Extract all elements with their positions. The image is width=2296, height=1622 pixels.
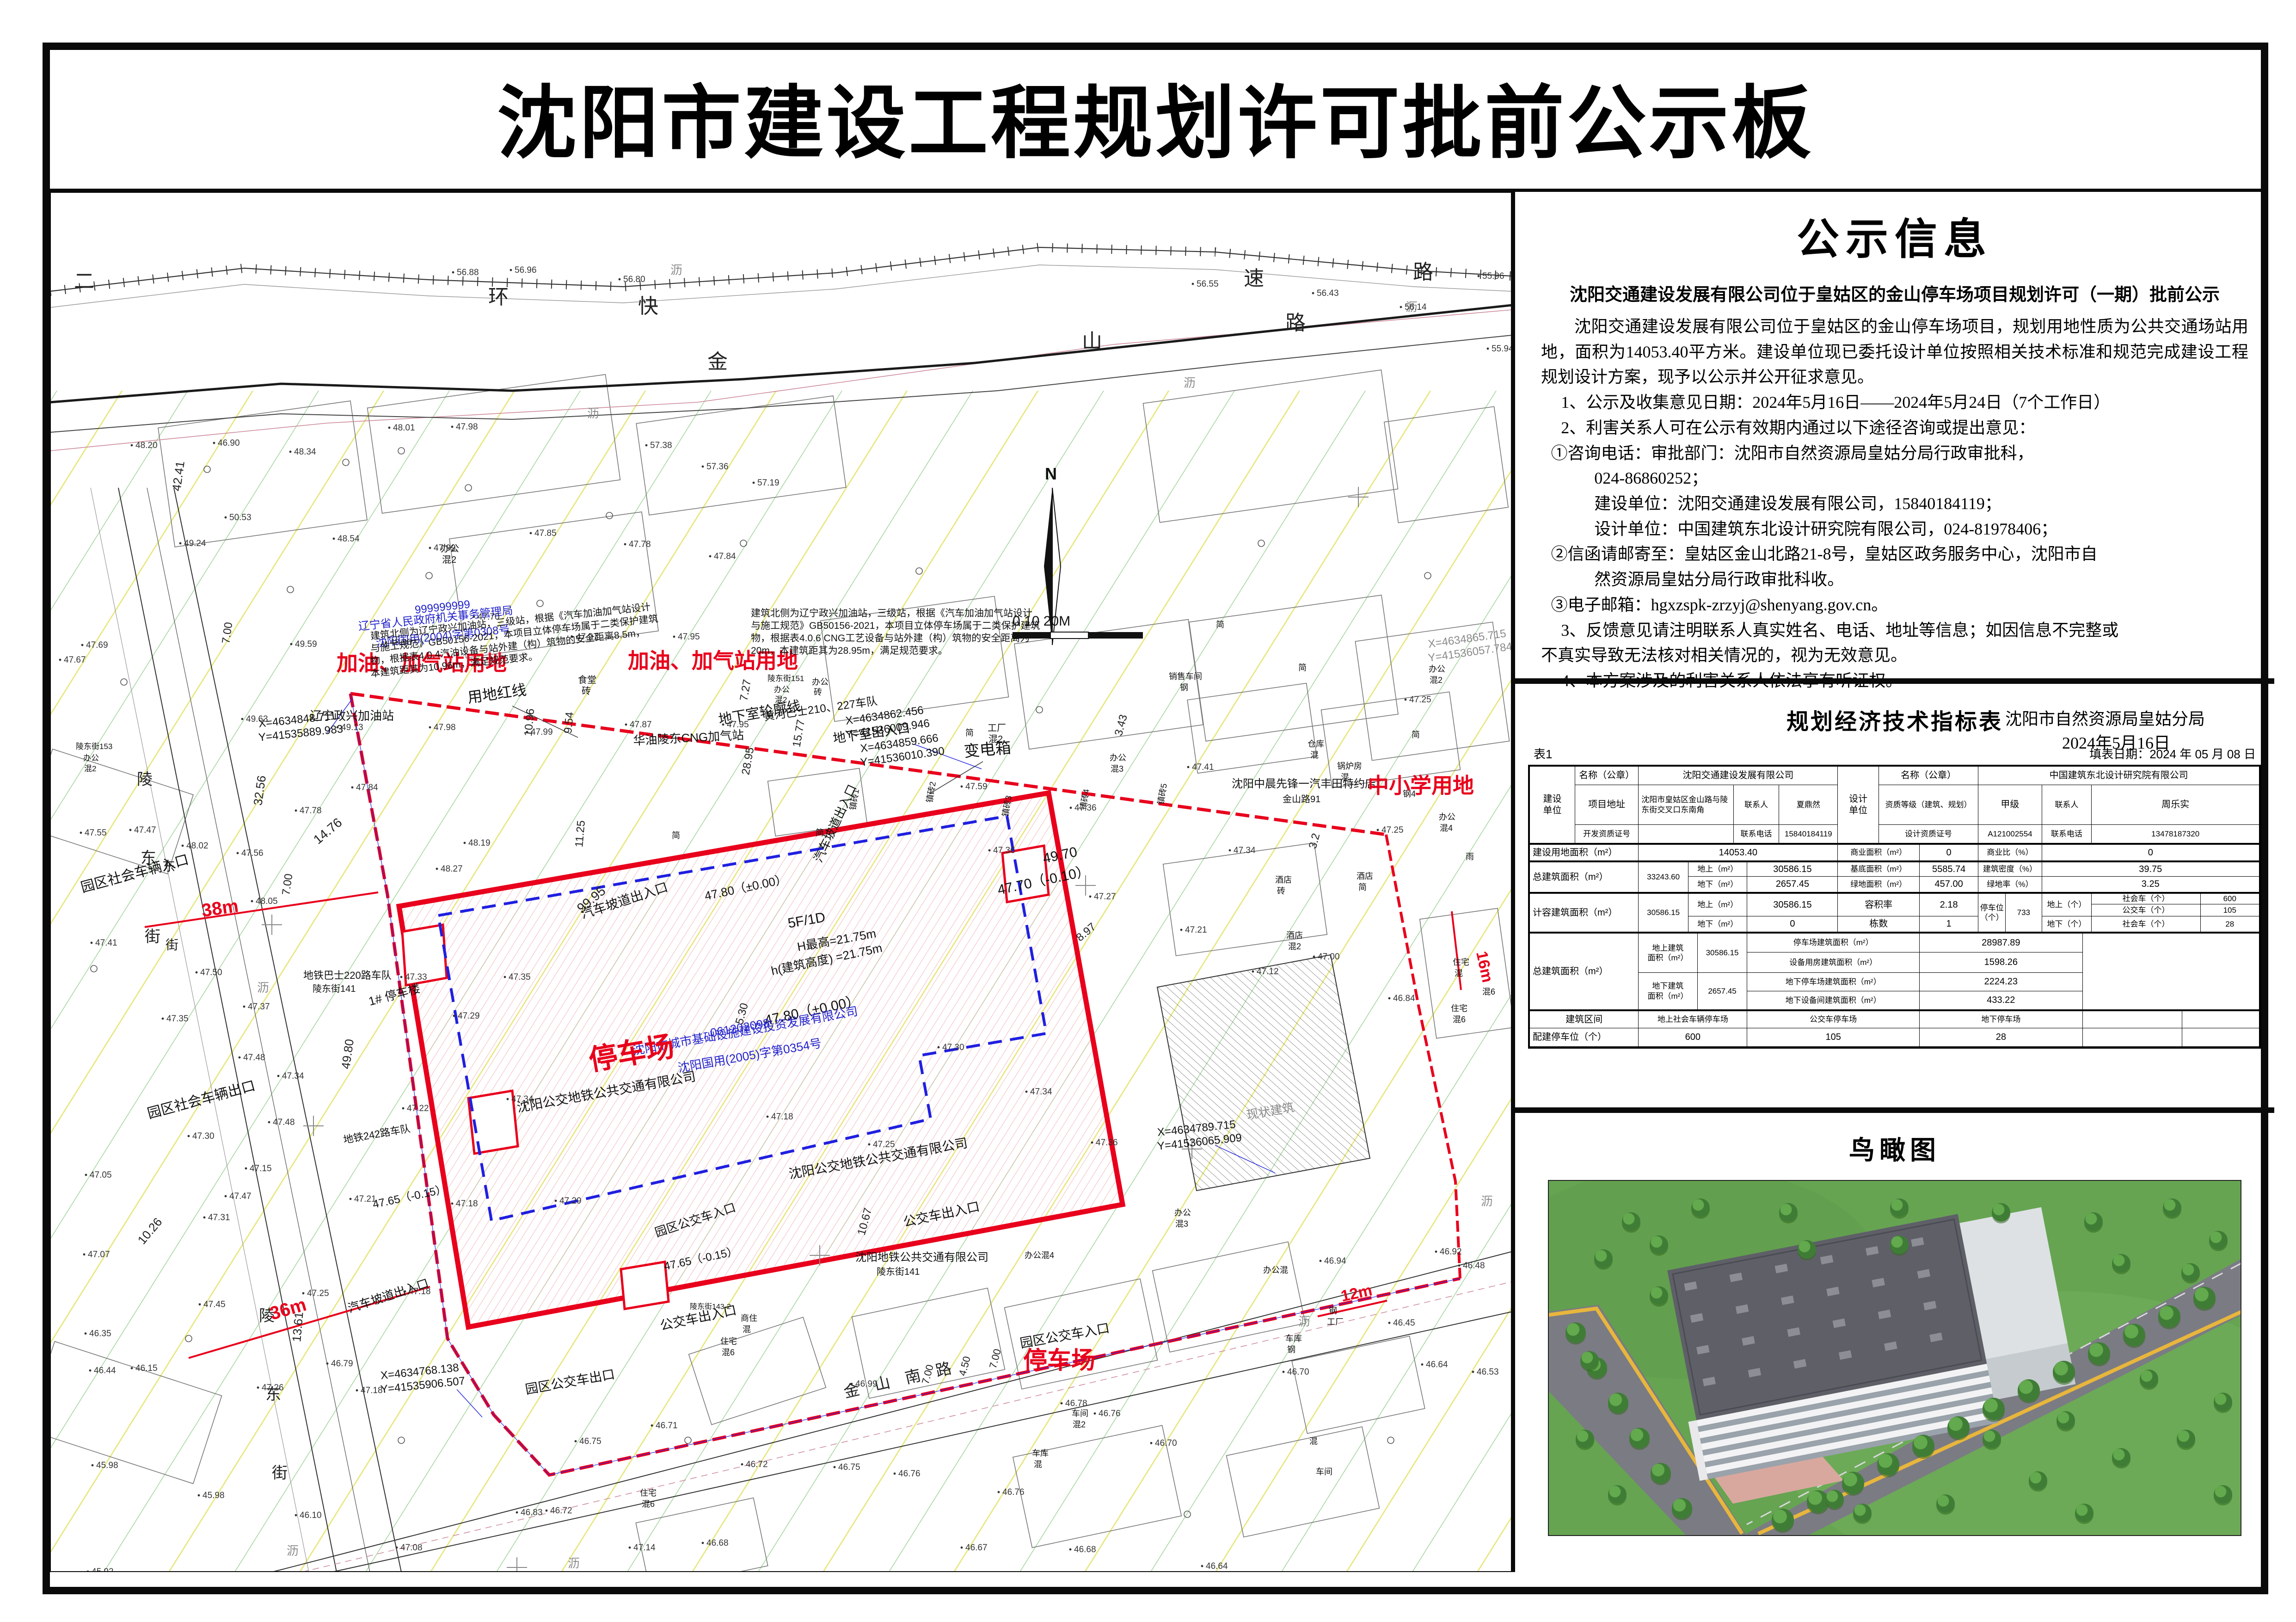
board-frame: 沈阳市建设工程规划许可批前公示板 二环快速路金山路陵东街东街陵东街金 山 南 路…	[43, 43, 2268, 1594]
table-cell: 联系电话	[2042, 825, 2092, 843]
map-label: 简	[672, 831, 680, 840]
elevation-dot	[302, 1292, 305, 1295]
map-label: 酒店	[1286, 931, 1303, 940]
map-label: 车间	[1072, 1409, 1088, 1418]
map-label: 混2	[84, 764, 96, 773]
table-cell: 设计 单位	[1838, 767, 1879, 843]
road-label: 路	[1285, 312, 1306, 334]
right-column: 公示信息 沈阳交通建设发展有限公司位于皇姑区的金山停车场项目规划许可（一期）批前…	[1512, 192, 2274, 1572]
table-cell: 2.18	[1920, 892, 1978, 916]
elevation-value: 47.18	[456, 1199, 478, 1209]
map-label: 混2	[775, 695, 787, 704]
elevation-value: 47.84	[714, 552, 736, 561]
note-text: 20m，本建筑距其为28.95m，满足规范要求。	[751, 645, 948, 656]
elevation-value: 46.68	[1074, 1545, 1096, 1554]
table-cell: 设计资质证号	[1879, 825, 1979, 843]
elevation-dot	[1061, 1402, 1063, 1405]
elevation-value: 48.34	[294, 447, 316, 457]
elevation-dot	[1252, 971, 1254, 973]
map-label: 陵东街151	[767, 674, 804, 683]
map-label: 混	[1309, 1437, 1318, 1446]
elevation-value: 48.19	[468, 838, 491, 848]
map-label: 车库	[1032, 1449, 1049, 1458]
table-cell: 0	[1747, 916, 1838, 932]
table-cell: 夏鼎然	[1779, 785, 1838, 825]
table-cell: 105	[1747, 1028, 1919, 1047]
tree-crown	[1808, 1491, 1822, 1505]
elevation-value: 47.56	[241, 848, 264, 858]
map-label: 混3	[1175, 1219, 1188, 1229]
elevation-dot	[188, 1135, 190, 1137]
elevation-value: 45.98	[96, 1461, 118, 1470]
elevation-value: 47.18	[409, 1287, 431, 1296]
elevation-value: 46.53	[1477, 1367, 1499, 1377]
elevation-dot	[1400, 306, 1402, 308]
elevation-dot	[89, 1370, 92, 1372]
map-label: 砖	[814, 688, 822, 697]
elevation-dot	[619, 278, 621, 281]
elevation-value: 47.50	[200, 968, 222, 977]
tree-crown	[1652, 1464, 1664, 1476]
elevation-value: 47.31	[208, 1213, 230, 1223]
elevation-dot	[453, 1015, 455, 1017]
site-notch	[621, 1262, 669, 1309]
table-cell: 总建筑面积（m²）	[1530, 932, 1639, 1010]
elevation-dot	[1377, 829, 1379, 831]
map-label: 仓库	[1308, 739, 1324, 749]
elevation-dot	[225, 516, 227, 519]
road-label: 街	[145, 928, 160, 946]
map-label: 简	[1216, 620, 1224, 629]
elevation-value: 47.33	[405, 972, 427, 982]
elevation-value: 46.64	[1426, 1360, 1448, 1370]
table-note-left: 表1	[1534, 745, 1552, 762]
table-cell: 2657.45	[1698, 973, 1748, 1010]
tree-crown	[1843, 1473, 1857, 1487]
elevation-value: 57.19	[757, 478, 780, 488]
map-label-faint: 沥	[1481, 1194, 1493, 1208]
elevation-value: 48.54	[338, 534, 360, 544]
elevation-value: 46.84	[1393, 994, 1415, 1003]
elevation-dot	[510, 269, 512, 271]
table-cell: 项目地址	[1575, 785, 1639, 825]
table-heading: 规划经济技术指标表	[1515, 684, 2274, 736]
tree-crown	[2030, 1472, 2042, 1484]
title-divider	[50, 189, 2261, 192]
table-cell: 105	[2201, 904, 2259, 916]
road-label: 山	[1082, 330, 1102, 353]
elevation-dot	[162, 1018, 164, 1020]
table-cell: 1598.26	[1920, 952, 2083, 973]
elevation-value: 46.68	[706, 1538, 729, 1548]
table-cell: 绿地率（%）	[1978, 877, 2042, 892]
elevation-value: 57.38	[650, 441, 672, 450]
table-cell: 30586.15	[1698, 932, 1748, 973]
elevation-dot	[464, 842, 466, 844]
elevation-value: 47.35	[166, 1014, 189, 1024]
elevation-value: 47.18	[771, 1112, 793, 1122]
elevation-dot	[1388, 997, 1391, 1000]
elevation-value: 47.78	[629, 540, 651, 549]
elevation-value: 46.35	[89, 1329, 111, 1339]
elevation-dot	[257, 1387, 259, 1389]
tree-crown	[2164, 1199, 2176, 1211]
tree-crown	[1651, 1236, 1663, 1248]
table-cell	[2182, 1028, 2259, 1047]
map-label: 混6	[1482, 987, 1495, 996]
elevation-dot	[722, 724, 724, 726]
map-label: 办公	[1429, 664, 1445, 674]
elevation-value: 46.67	[965, 1543, 988, 1553]
table-cell: 甲级	[1978, 785, 2042, 825]
tree-crown	[1693, 1199, 1704, 1211]
map-label: 锅炉房	[1337, 762, 1362, 771]
elevation-value: 47.30	[942, 1043, 964, 1052]
elevation-value: 46.76	[898, 1469, 921, 1479]
map-label: 混2	[1430, 676, 1443, 685]
elevation-dot	[1201, 1565, 1203, 1567]
tree-crown	[2113, 1255, 2125, 1266]
elevation-value: 47.87	[630, 720, 652, 730]
elevation-value: 47.47	[229, 1192, 252, 1201]
table-cell: 停车场建筑面积（m²）	[1747, 932, 1919, 952]
elevation-dot	[1150, 1442, 1153, 1444]
dimension-label: 9.54	[562, 712, 576, 734]
tree-crown	[1609, 1394, 1622, 1406]
elevation-value: 46.70	[1287, 1367, 1309, 1377]
elevation-value: 46.15	[135, 1364, 158, 1373]
road-label: 路	[1413, 261, 1433, 283]
map-label: 办公	[1174, 1208, 1191, 1217]
table-cell: 联系人	[2042, 785, 2092, 825]
tree-crown	[1651, 1287, 1663, 1299]
map-label: 钢	[1180, 683, 1188, 692]
notice-line: ③电子邮箱：hgxzspk-zrzyj@shenyang.gov.cn。	[1541, 592, 2248, 618]
map-label: 办公	[1439, 812, 1455, 822]
elevation-dot	[129, 829, 132, 831]
table-cell: 地下停车场	[1920, 1010, 2083, 1028]
elevation-value: 47.00	[1318, 952, 1340, 962]
elevation-value: 49.13	[341, 723, 363, 732]
table-cell: 绿地面积（m²）	[1838, 877, 1919, 892]
elevation-dot	[1069, 1548, 1072, 1551]
elevation-value: 47.45	[203, 1300, 226, 1309]
table-cell: 733	[2006, 892, 2042, 932]
elevation-dot	[624, 543, 626, 546]
elevation-dot	[530, 532, 532, 535]
tree-crown	[1673, 1499, 1686, 1511]
tree-crown	[2183, 1264, 2194, 1276]
elevation-dot	[356, 1389, 358, 1392]
elevation-dot	[239, 1057, 241, 1059]
table-cell: 中国建筑东北设计研究院有限公司	[1978, 767, 2259, 785]
elevation-dot	[1229, 849, 1231, 852]
elevation-value: 56.14	[1405, 302, 1427, 312]
elevation-dot	[575, 1440, 577, 1443]
elevation-value: 47.48	[243, 1053, 265, 1063]
elevation-value: 47.34	[1234, 846, 1256, 855]
tree-crown	[1623, 1213, 1635, 1225]
elevation-value: 47.48	[273, 1118, 295, 1127]
elevation-dot	[326, 1363, 329, 1365]
map-label: 沈阳中晨先锋一汽丰田特约店	[1232, 778, 1376, 790]
elevation-dot	[1312, 292, 1314, 295]
map-label: 住宅	[1453, 958, 1469, 967]
tree-crown	[1984, 1431, 1995, 1442]
table-cell: 沈阳市皇姑区金山路与陵东街交叉口东南角	[1639, 785, 1734, 825]
tree-crown	[1993, 1204, 2005, 1216]
road-label: 街	[272, 1464, 288, 1482]
map-label: 陵东街153	[76, 742, 112, 751]
elevation-value: 47.59	[965, 782, 988, 792]
map-label: 商住	[741, 1314, 757, 1323]
map-label: 车库	[1285, 1334, 1302, 1343]
map-label: 钢	[1329, 1306, 1337, 1315]
elevation-dot	[702, 1542, 704, 1544]
map-label: 沈阳地铁公共交通有限公司	[855, 1251, 988, 1264]
north-label: N	[1045, 464, 1057, 483]
table-cell: 600	[1639, 1028, 1747, 1047]
elevation-dot	[1313, 956, 1315, 958]
table-cell: 资质等级（建筑、规划）	[1879, 785, 1979, 825]
elevation-value: 46.99	[855, 1379, 878, 1389]
elevation-value: 45.98	[203, 1491, 225, 1500]
table-cell: 商业面积（m²）	[1838, 843, 1919, 861]
elevation-dot	[179, 542, 182, 545]
table-cell: 社会车（个）	[2092, 892, 2200, 904]
map-label: 简	[1358, 883, 1367, 892]
elevation-dot	[645, 444, 648, 447]
elevation-value: 47.18	[361, 1386, 383, 1395]
table-cell: 地下建筑 面积（m²）	[1639, 973, 1697, 1010]
elevation-value: 47.55	[85, 828, 107, 838]
table-cell	[1639, 825, 1734, 843]
table-cell: 基底面积（m²）	[1838, 861, 1919, 877]
tree-crown	[1827, 1491, 1838, 1502]
elevation-dot	[251, 900, 253, 903]
elevation-dot	[1025, 1091, 1028, 1093]
map-label-faint: 沥	[1184, 376, 1196, 390]
elevation-value: 56.80	[623, 275, 645, 284]
map-label: 酒店	[1275, 875, 1292, 885]
elevation-value: 47.21	[1185, 925, 1207, 935]
tree-crown	[2086, 1213, 2097, 1225]
elevation-dot	[245, 1167, 247, 1170]
note-text: 物，根据表4.0.6 CNG工艺设备与站外建（构）筑物的安全距离为	[751, 633, 1030, 644]
elevation-value: 46.76	[1002, 1487, 1025, 1497]
map-label-faint: 沥	[257, 981, 269, 995]
board-title: 沈阳市建设工程规划许可批前公示板	[50, 58, 2261, 174]
table-notes: 表1 填表日期：2024 年 05 月 08 日	[1515, 736, 2274, 765]
elevation-dot	[388, 427, 391, 429]
elevation-dot	[651, 1425, 653, 1427]
elevation-value: 57.36	[706, 462, 729, 472]
map-label: 混6	[722, 1348, 735, 1357]
notice-line: 2、利害关系人可在公示有效期内通过以下途径咨询或提出意见：	[1541, 415, 2248, 441]
elevation-dot	[83, 1253, 86, 1256]
elevation-dot	[1192, 283, 1194, 285]
dimension-label: 11.25	[573, 820, 588, 848]
elevation-value: 47.26	[262, 1383, 284, 1393]
elevation-value: 56.43	[1317, 289, 1339, 298]
elevation-dot	[429, 726, 431, 729]
elevation-value: 46.79	[331, 1359, 353, 1369]
map-label: 住宅	[720, 1337, 737, 1346]
elevation-dot	[851, 1383, 853, 1385]
tree-crown	[1799, 1241, 1811, 1253]
elevation-dot	[1070, 807, 1072, 809]
table-cell: 地上建筑 面积（m²）	[1639, 932, 1697, 973]
elevation-dot	[526, 731, 528, 733]
elevation-value: 46.45	[1393, 1318, 1415, 1328]
elevation-value: 50.53	[229, 513, 252, 522]
elevation-value: 47.41	[95, 938, 117, 948]
elevation-dot	[767, 1116, 769, 1118]
elevation-value: 47.22	[407, 1104, 429, 1113]
tree-crown	[1596, 1250, 1607, 1262]
elevation-dot	[404, 1290, 406, 1293]
elevation-dot	[507, 1098, 509, 1100]
elevation-dot	[237, 852, 239, 854]
table-cell: 地上（个）	[2042, 892, 2092, 916]
elevation-value: 47.95	[678, 632, 700, 642]
table-cell: 名称（公章）	[1575, 767, 1639, 785]
elevation-dot	[295, 1514, 297, 1517]
elevation-dot	[1091, 1142, 1093, 1144]
elevation-value: 48.20	[135, 441, 158, 450]
elevation-dot	[289, 451, 292, 453]
tree-crown	[2215, 1486, 2227, 1498]
elevation-dot	[1283, 1371, 1285, 1373]
map-label: 办公混4	[1025, 1251, 1054, 1260]
elevation-value: 47.07	[88, 1250, 110, 1260]
tree-crown	[1582, 1352, 1593, 1364]
table-cell: 14053.40	[1639, 843, 1838, 861]
elevation-dot	[709, 555, 712, 558]
scale-text: 0 10 20M	[1013, 614, 1070, 629]
notice-line: ②信函请邮寄至：皇姑区金山北路21-8号，皇姑区政务服务中心，沈阳市自	[1541, 541, 2248, 567]
site-notch	[468, 1091, 518, 1154]
elevation-value: 47.27	[1094, 892, 1116, 902]
map-label: 办公	[83, 754, 99, 762]
map-label: 办公	[1110, 753, 1126, 762]
table-cell: 周乐实	[2092, 785, 2259, 825]
map-label: 住宅	[1451, 1004, 1467, 1013]
map-label: 地铁巴士220路车队	[303, 970, 392, 981]
road-label: 陵	[137, 771, 153, 788]
notice-line: 024-86860252；	[1541, 466, 2248, 491]
table-cell: 457.00	[1920, 877, 1978, 892]
table-cell: 地下（个）	[2042, 916, 2092, 932]
elevation-dot	[350, 1198, 352, 1200]
elevation-value: 55.94	[1492, 344, 1512, 354]
elevation-dot	[504, 976, 506, 978]
elevation-value: 47.36	[1074, 803, 1097, 813]
elevation-dot	[546, 1510, 548, 1512]
elevation-value: 47.29	[559, 1196, 582, 1206]
elevation-value: 47.25	[1381, 825, 1404, 835]
table-cell: 建筑密度（%）	[1978, 861, 2042, 877]
elevation-value: 47.12	[1257, 967, 1279, 977]
elevation-value: 47.99	[434, 543, 456, 553]
table-cell: 30586.15	[1747, 892, 1838, 916]
elevation-dot	[894, 1473, 896, 1475]
elevation-dot	[131, 444, 133, 447]
table-cell: 2224.23	[1920, 973, 2083, 991]
table-cell: 栋数	[1838, 916, 1919, 932]
elevation-dot	[182, 845, 184, 847]
elevation-value: 46.90	[218, 438, 240, 448]
elevation-value: 47.34	[1030, 1087, 1052, 1097]
red-zone-label: 中小学用地	[1368, 774, 1474, 798]
map-label: 砖	[582, 686, 591, 696]
table-cell: 联系电话	[1734, 825, 1779, 843]
elevation-dot	[673, 636, 675, 638]
elevation-value: 46.71	[656, 1421, 678, 1431]
table-cell: 地下（m²）	[1688, 916, 1747, 932]
map-label-faint: 沥	[568, 1556, 580, 1570]
road-label: 环	[488, 286, 509, 308]
elevation-value: 56.96	[515, 265, 537, 275]
elevation-value: 49.63	[246, 714, 268, 724]
table-cell: 设备用房建筑面积（m²）	[1747, 952, 1919, 973]
elevation-value: 48.27	[441, 864, 463, 874]
elevation-dot	[85, 1333, 87, 1335]
elevation-dot	[92, 1464, 94, 1467]
notice-lines: 1、公示及收集意见日期：2024年5月16日——2024年5月24日（7个工作日…	[1541, 390, 2248, 694]
elevation-value: 46.48	[1463, 1261, 1485, 1271]
table-cell: 名称（公章）	[1879, 767, 1979, 785]
map-label: 陵东街143-2	[690, 1303, 731, 1311]
elevation-value: 56.55	[1197, 279, 1219, 289]
elevation-dot	[81, 644, 84, 646]
elevation-dot	[1180, 929, 1183, 931]
elevation-dot	[225, 1195, 227, 1198]
elevation-dot	[451, 1203, 454, 1205]
table-cell: 总建筑面积（m²）	[1530, 861, 1639, 892]
tree-crown	[2141, 1370, 2153, 1382]
elevation-dot	[1478, 275, 1480, 277]
table-cell: 0	[1920, 843, 1978, 861]
tree-crown	[2019, 1380, 2033, 1394]
table-cell: 15840184119	[1779, 825, 1838, 843]
notice-heading: 公示信息	[1515, 192, 2274, 266]
elevation-value: 47.98	[456, 422, 478, 432]
elevation-dot	[429, 547, 431, 549]
table-cell: 社会车（个）	[2092, 916, 2200, 932]
tree-crown	[2058, 1412, 2069, 1424]
elevation-dot	[268, 1121, 270, 1124]
map-label: 混4	[1440, 823, 1453, 833]
map-label: 办公	[812, 677, 829, 687]
elevation-dot	[741, 1463, 743, 1466]
elevation-dot	[85, 1174, 87, 1176]
elevation-dot	[333, 538, 335, 540]
elevation-value: 47.36	[993, 846, 1015, 855]
table-cell: 商业比（%）	[1978, 843, 2042, 861]
map-label: 钢	[1287, 1345, 1295, 1354]
elevation-value: 48.01	[393, 423, 415, 433]
elevation-value: 46.76	[1099, 1409, 1121, 1419]
road-label: 速	[1244, 267, 1264, 290]
tree-crown	[2124, 1325, 2138, 1339]
table-cell: 地上社会车辆停车场	[1639, 1010, 1747, 1028]
elevation-dot	[1487, 348, 1489, 350]
table-cell: 建设 单位	[1530, 767, 1575, 843]
elevation-value: 47.85	[534, 528, 557, 538]
table-cell: 停车位 （个）	[1978, 892, 2006, 932]
elevation-value: 46.83	[521, 1508, 543, 1518]
